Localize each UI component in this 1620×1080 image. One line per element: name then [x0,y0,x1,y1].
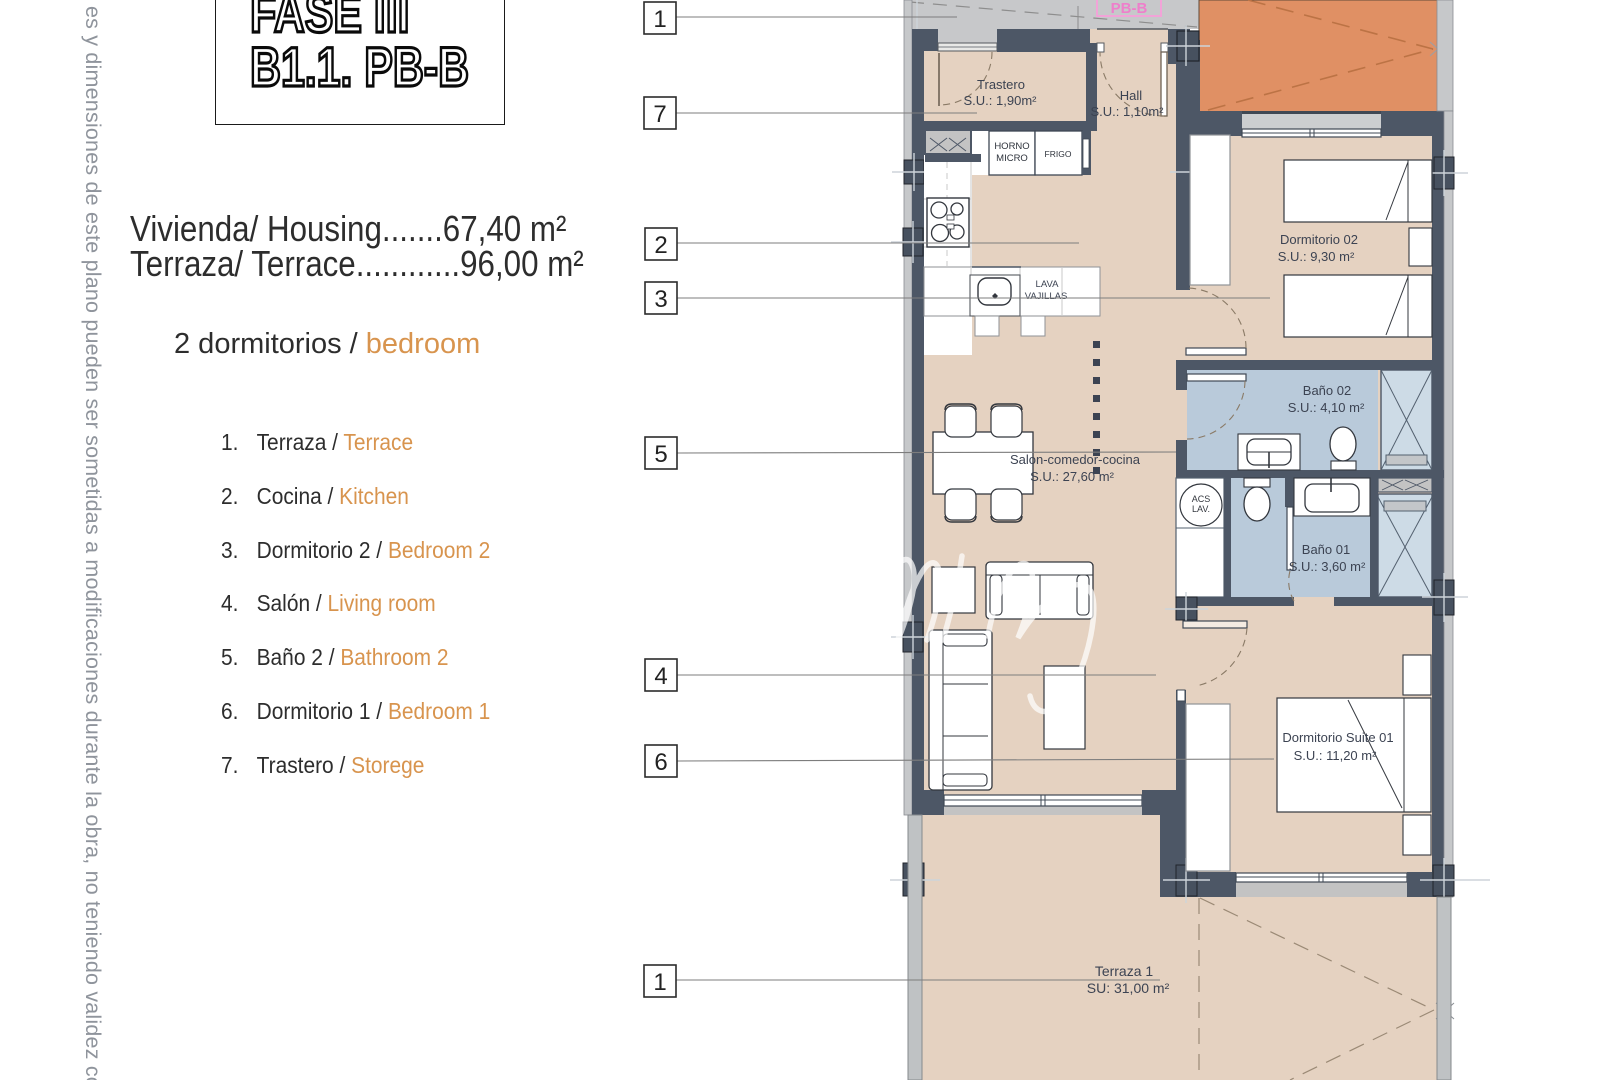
svg-text:S.U.: 27,60 m²: S.U.: 27,60 m² [1030,469,1114,484]
svg-text:VAJILLAS: VAJILLAS [1025,291,1068,302]
svg-text:4: 4 [654,663,667,690]
svg-text:S.U.: 4,10 m²: S.U.: 4,10 m² [1288,400,1365,415]
svg-text:1: 1 [653,6,666,33]
svg-text:1: 1 [653,969,666,996]
svg-text:Baño 02: Baño 02 [1303,383,1351,398]
svg-text:SU: 31,00 m²: SU: 31,00 m² [1087,980,1170,996]
svg-text:3: 3 [654,286,667,313]
svg-text:Terraza 1: Terraza 1 [1095,963,1154,979]
svg-text:S.U.: 9,30 m²: S.U.: 9,30 m² [1278,249,1355,264]
svg-text:LAV.: LAV. [1192,504,1210,514]
svg-text:Salon-comedor-cocina: Salon-comedor-cocina [1010,452,1141,467]
svg-text:7: 7 [653,101,666,128]
svg-text:Dormitorio 02: Dormitorio 02 [1280,232,1358,247]
svg-text:S.U.: 1,10m²: S.U.: 1,10m² [1091,104,1165,119]
svg-text:6: 6 [654,749,667,776]
svg-text:5: 5 [654,441,667,468]
svg-text:FRIGO: FRIGO [1045,149,1072,159]
svg-text:Dormitorio Suite 01: Dormitorio Suite 01 [1282,730,1393,745]
svg-text:MICRO: MICRO [996,153,1028,164]
svg-text:S.U.: 1,90m²: S.U.: 1,90m² [964,93,1038,108]
svg-text:2: 2 [654,232,667,259]
svg-text:Baño 01: Baño 01 [1302,542,1350,557]
svg-text:Hall: Hall [1120,88,1143,103]
svg-text:HORNO: HORNO [994,141,1029,152]
svg-text:ACS: ACS [1192,494,1211,504]
svg-text:S.U.: 3,60 m²: S.U.: 3,60 m² [1289,559,1366,574]
svg-text:LAVA: LAVA [1036,279,1060,290]
svg-text:PB-B: PB-B [1111,0,1148,17]
svg-text:S.U.: 11,20 m²: S.U.: 11,20 m² [1294,748,1378,763]
svg-text:Trastero: Trastero [977,77,1025,92]
